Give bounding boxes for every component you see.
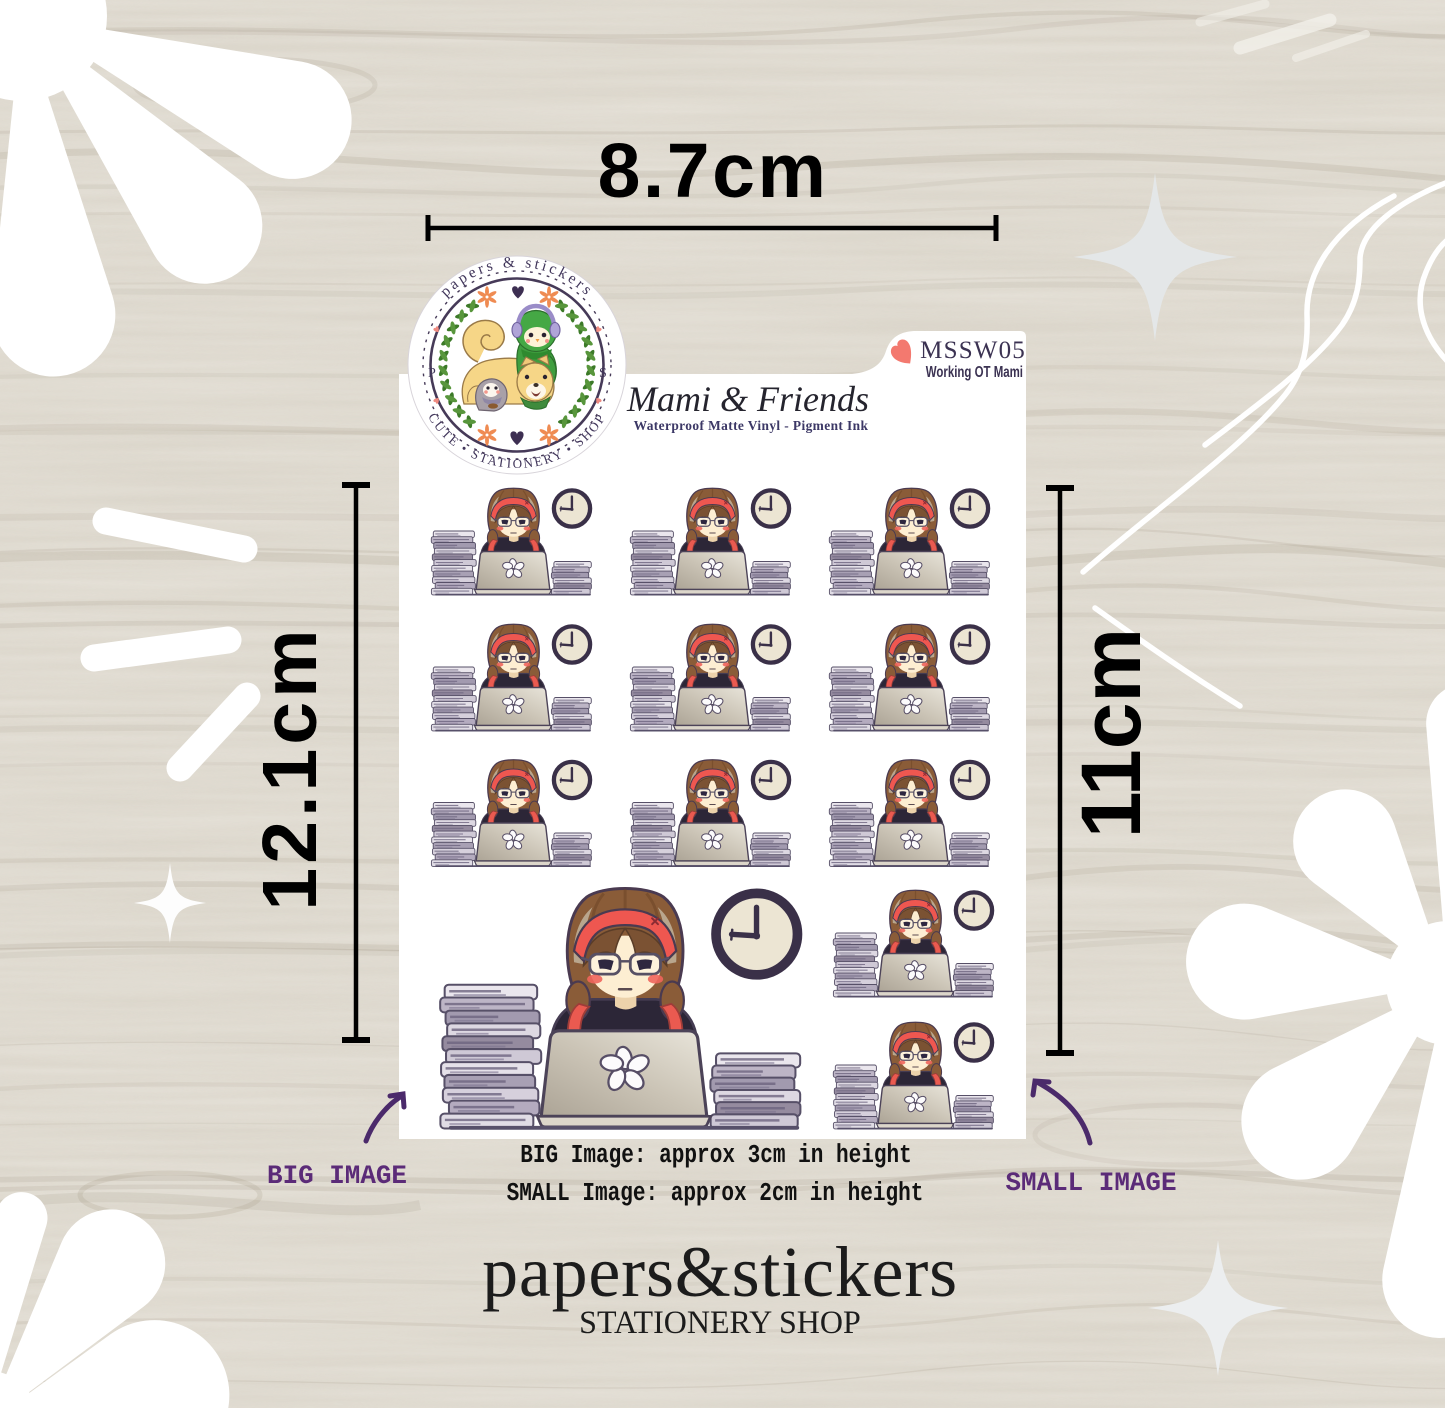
svg-text:8.7cm: 8.7cm [598,128,829,214]
svg-text:P: P [428,366,436,381]
svg-text:11cm: 11cm [1064,628,1158,838]
svg-text:SMALL IMAGE: SMALL IMAGE [1005,1168,1176,1199]
svg-text:MSSW05: MSSW05 [920,337,1026,364]
svg-text:12.1cm: 12.1cm [247,625,333,910]
svg-text:Working OT Mami: Working OT Mami [926,363,1023,380]
svg-text:Waterproof Matte Vinyl - Pigme: Waterproof Matte Vinyl - Pigment Ink [634,418,869,433]
svg-text:SMALL Image: approx 2cm in hei: SMALL Image: approx 2cm in height [507,1179,924,1209]
svg-text:S: S [599,366,607,381]
svg-text:BIG Image: approx 3cm in heigh: BIG Image: approx 3cm in height [520,1141,911,1171]
svg-text:STATIONERY SHOP: STATIONERY SHOP [579,1305,861,1342]
svg-text:BIG IMAGE: BIG IMAGE [267,1161,407,1192]
svg-text:Mami & Friends: Mami & Friends [626,379,869,419]
svg-text:papers&stickers: papers&stickers [482,1232,958,1312]
